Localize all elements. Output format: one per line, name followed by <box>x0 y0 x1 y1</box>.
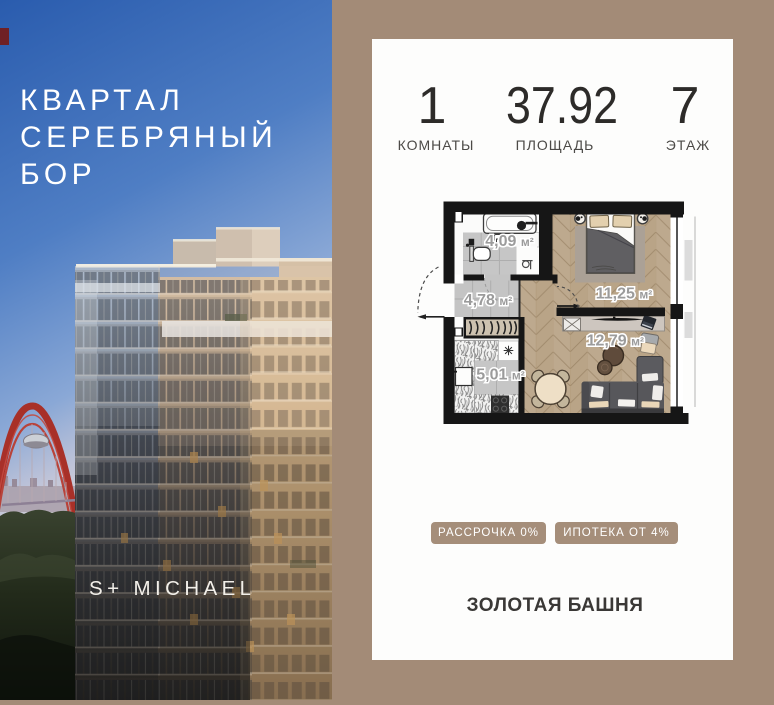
svg-text:5,01 м²: 5,01 м² <box>476 367 524 384</box>
svg-text:11,25 м²: 11,25 м² <box>596 286 652 303</box>
svg-text:4,09 м²: 4,09 м² <box>485 233 533 250</box>
svg-text:12,79 м²: 12,79 м² <box>587 333 644 350</box>
svg-text:4,78 м²: 4,78 м² <box>464 292 512 309</box>
